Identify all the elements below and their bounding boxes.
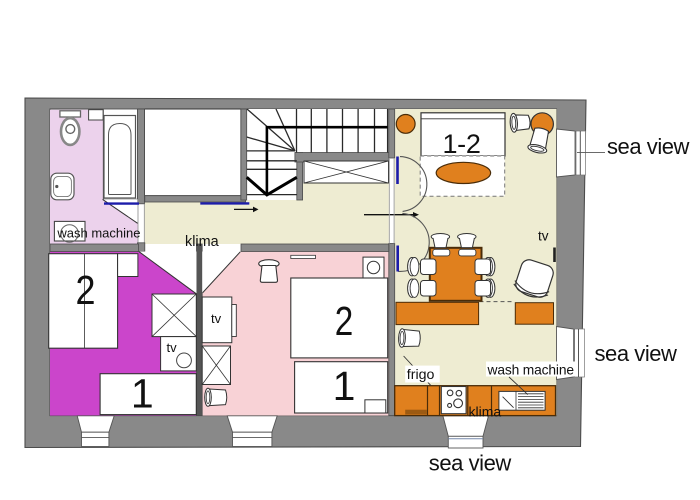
svg-text:tv: tv [538, 228, 549, 243]
svg-text:1-2: 1-2 [442, 129, 480, 159]
svg-text:1: 1 [333, 363, 356, 409]
svg-text:klima: klima [185, 234, 219, 250]
svg-text:sea view: sea view [607, 134, 690, 159]
svg-text:wash machine: wash machine [56, 226, 140, 241]
svg-text:tv: tv [211, 311, 222, 326]
svg-text:klima: klima [469, 403, 502, 419]
svg-text:2: 2 [335, 298, 354, 344]
svg-text:2: 2 [76, 267, 96, 313]
svg-text:sea view: sea view [595, 341, 678, 366]
svg-text:sea view: sea view [429, 451, 512, 476]
svg-text:wash machine: wash machine [487, 363, 575, 378]
svg-text:1: 1 [131, 371, 154, 417]
svg-text:frigo: frigo [407, 367, 435, 383]
svg-text:tv: tv [167, 340, 178, 355]
